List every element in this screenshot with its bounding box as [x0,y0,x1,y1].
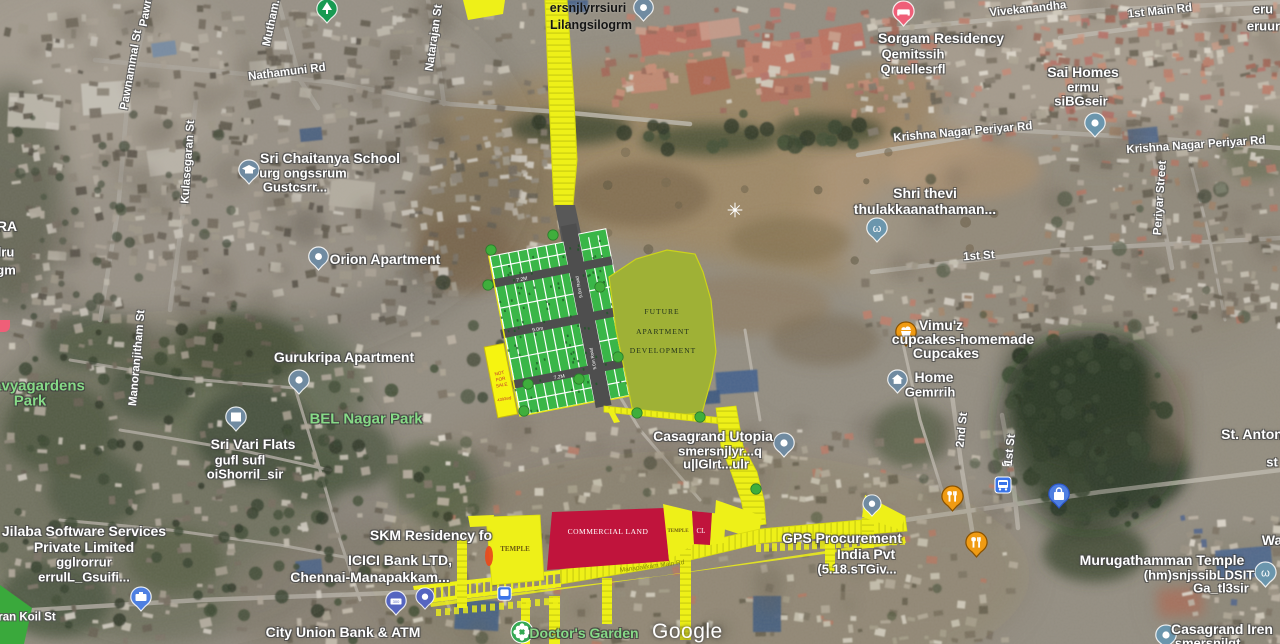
svg-text:COMMERCIAL LAND: COMMERCIAL LAND [568,527,649,536]
svg-text:TEMPLE: TEMPLE [667,529,689,534]
svg-text:APARTMENT: APARTMENT [636,327,690,336]
svg-text:CL: CL [697,527,706,535]
svg-text:ω: ω [873,223,882,235]
svg-text:DEVELOPMENT: DEVELOPMENT [630,346,696,355]
svg-text:300: 300 [393,599,400,604]
svg-text:TEMPLE: TEMPLE [500,545,530,553]
svg-text:FUTURE: FUTURE [644,307,679,316]
svg-text:ω: ω [1261,568,1270,580]
